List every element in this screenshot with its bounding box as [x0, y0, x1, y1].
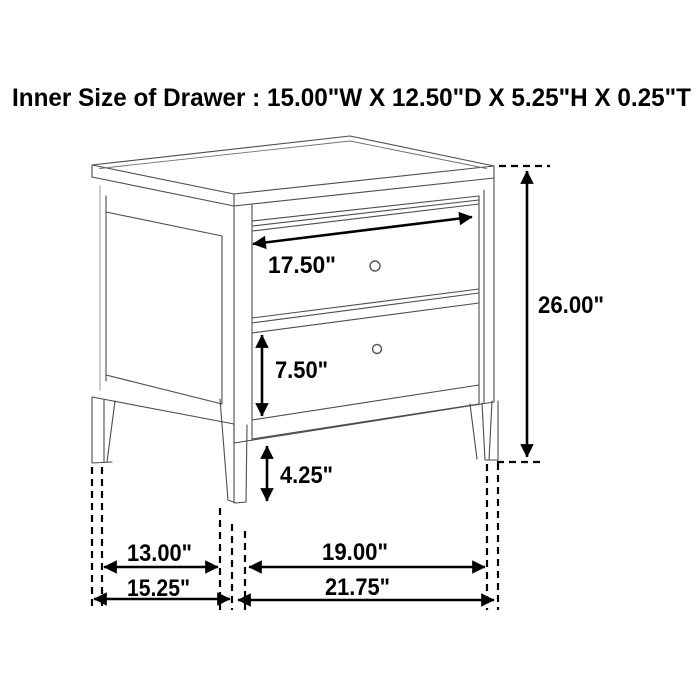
dimension-leg-height: 4.25"	[267, 446, 333, 501]
dimension-label: 17.50"	[268, 252, 336, 279]
back-left-leg	[92, 397, 115, 463]
dimension-label: 21.75"	[325, 574, 390, 601]
dimension-overall-depth: 15.25"	[94, 575, 230, 602]
dimension-label: 4.25"	[280, 462, 333, 489]
page-title: Inner Size of Drawer : 15.00"W X 12.50"D…	[12, 84, 691, 112]
dimension-width-between-legs: 19.00"	[249, 539, 485, 567]
dimension-overall-height: 26.00"	[527, 171, 604, 457]
dimension-overall-width: 21.75"	[238, 574, 494, 601]
dimension-label: 15.25"	[127, 575, 190, 602]
bottom-drawer-knob-icon	[373, 345, 382, 354]
side-panel	[92, 186, 234, 424]
front-right-leg	[470, 401, 498, 460]
dimension-lower-drawer-height: 7.50"	[262, 335, 328, 416]
dimension-drawer-front-width: 17.50"	[253, 217, 472, 279]
dimension-depth-between-legs: 13.00"	[104, 540, 218, 567]
product-dimension-diagram: Inner Size of Drawer : 15.00"W X 12.50"D…	[0, 0, 700, 700]
dimension-label: 26.00"	[538, 292, 604, 319]
dimensions: 17.50" 26.00" 7.50" 4.25" 13.00" 15.25" …	[94, 171, 604, 602]
table-top	[92, 136, 494, 206]
dimension-label: 7.50"	[275, 357, 328, 384]
nightstand-drawing	[92, 136, 498, 503]
dimension-label: 19.00"	[322, 539, 388, 566]
dimension-label: 13.00"	[127, 540, 192, 567]
top-drawer-knob-icon	[370, 261, 380, 271]
diagram-canvas: Inner Size of Drawer : 15.00"W X 12.50"D…	[0, 0, 700, 700]
